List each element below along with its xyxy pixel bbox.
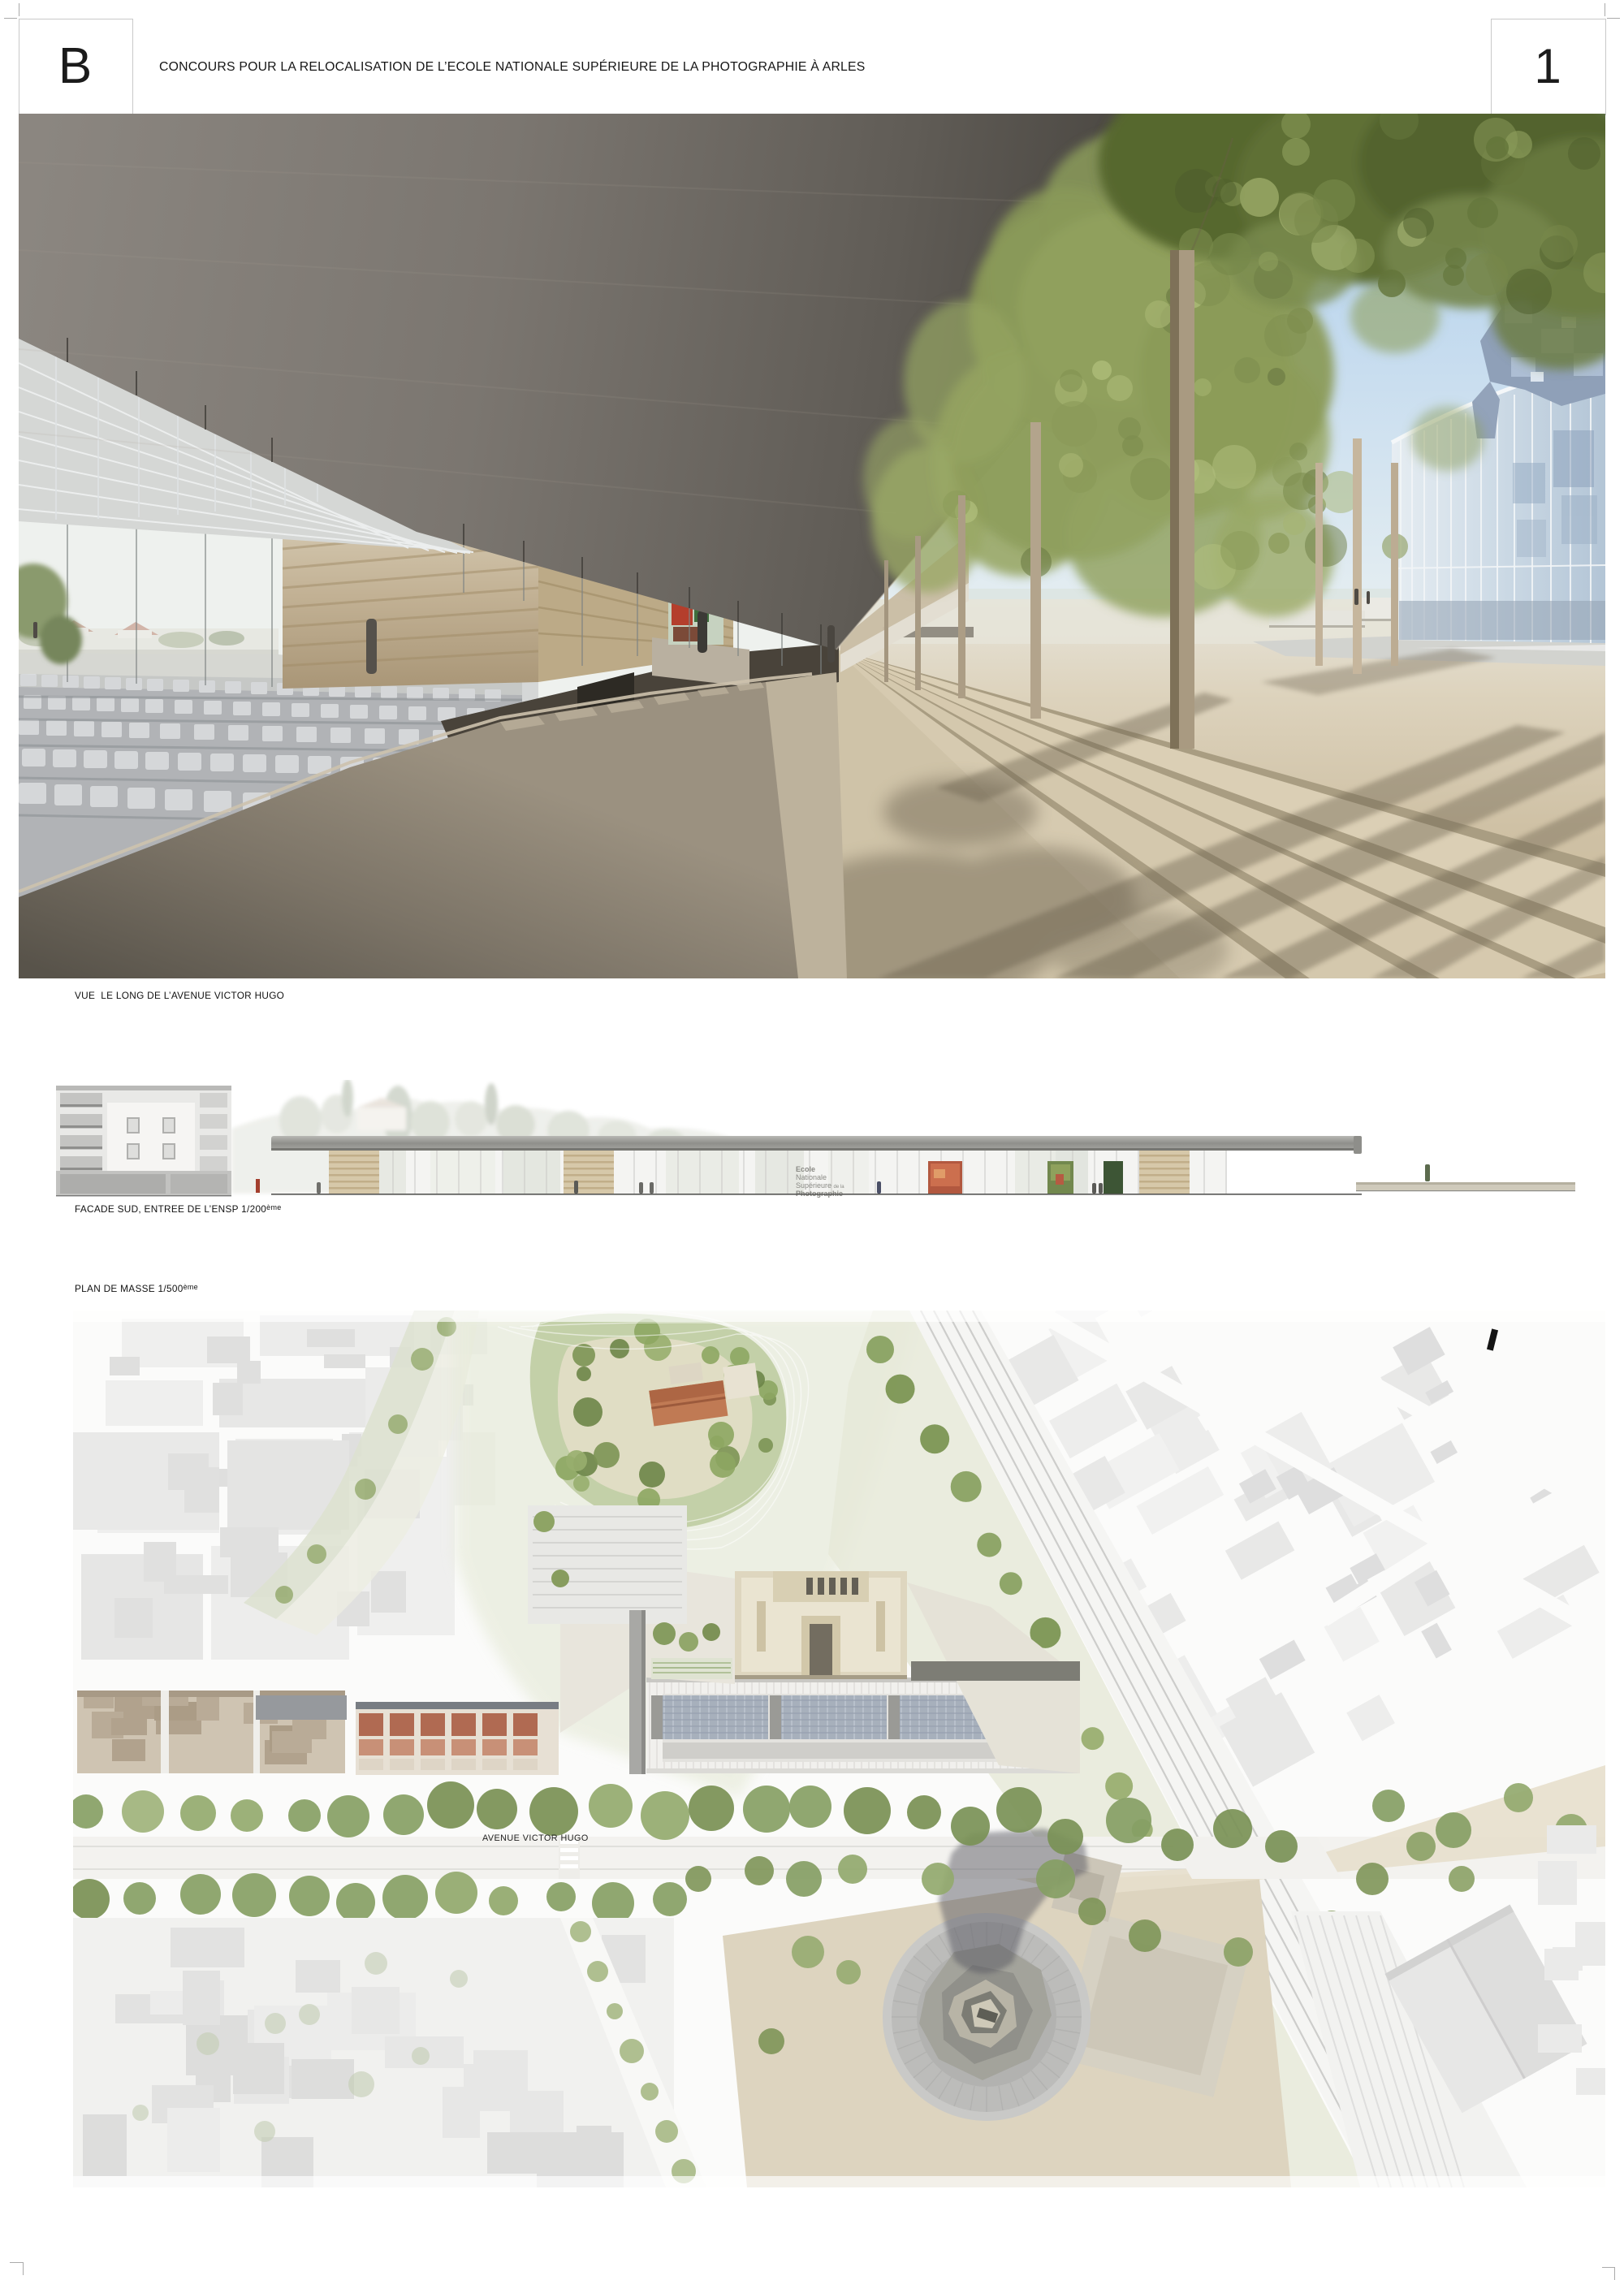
svg-text:Ecole: Ecole [796,1165,815,1173]
svg-text:Nationale: Nationale [796,1173,827,1181]
